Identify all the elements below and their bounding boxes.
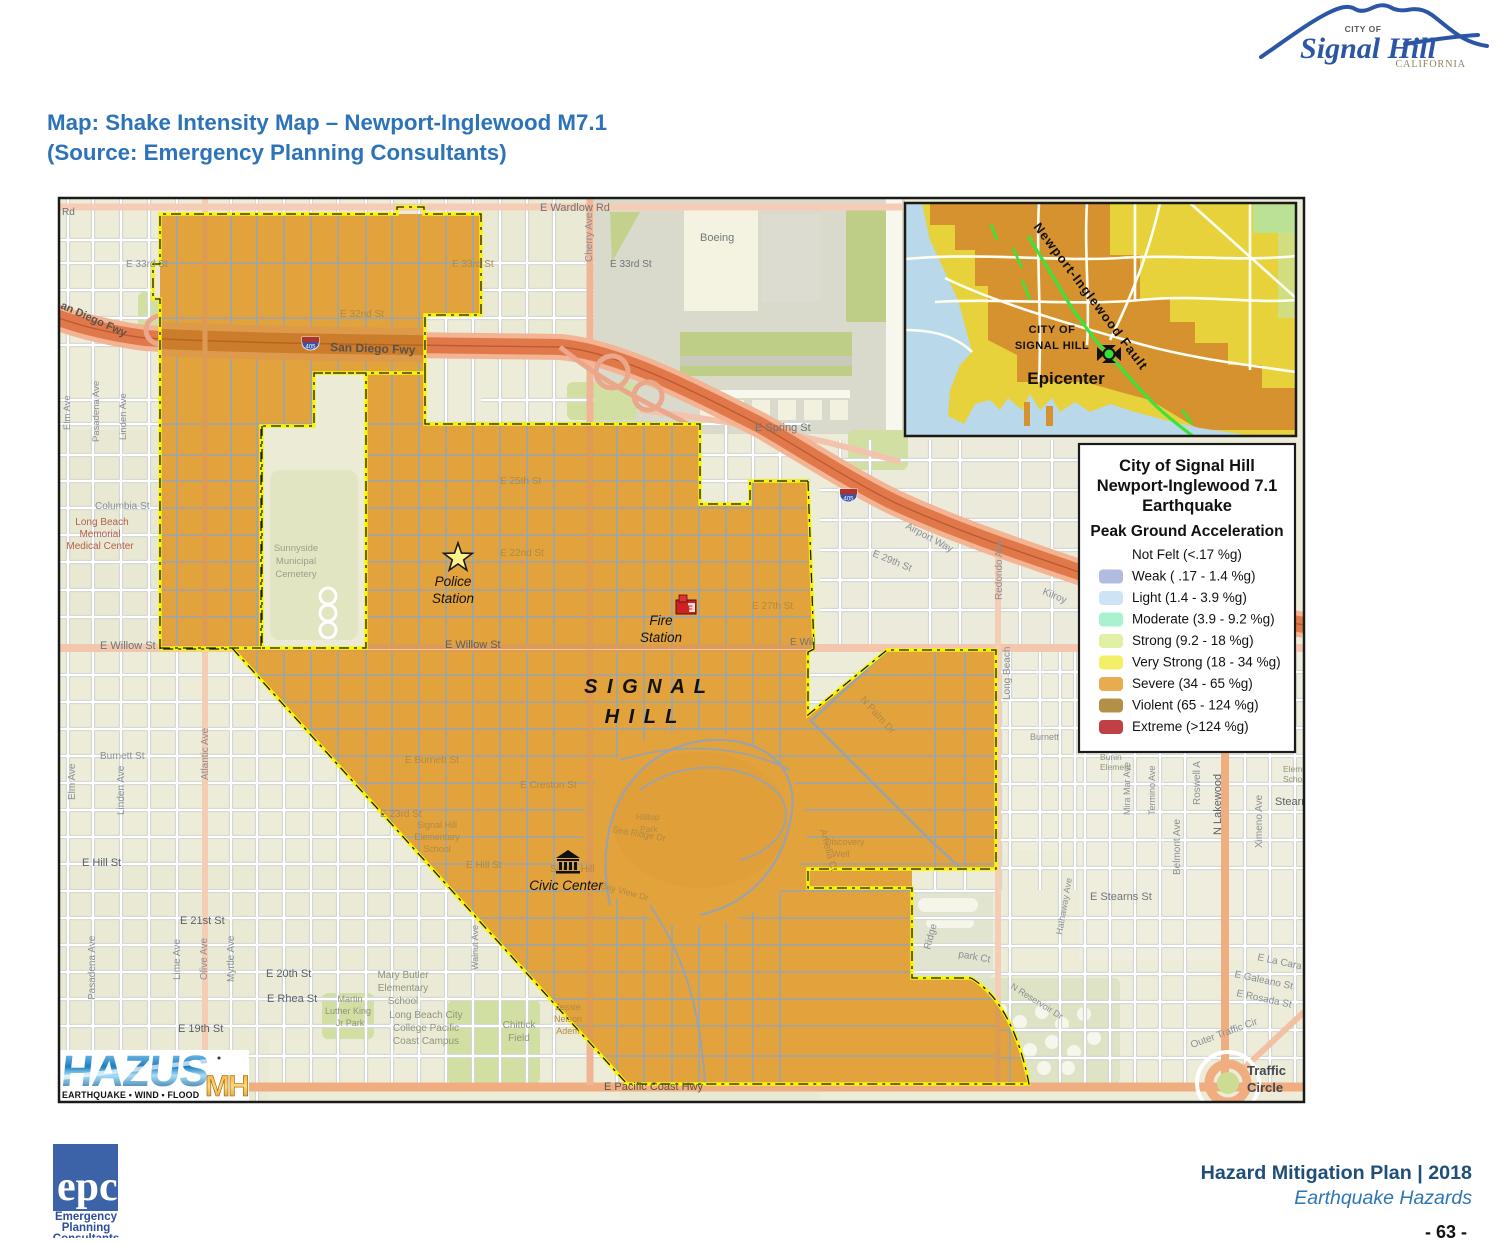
svg-text:S I G N A L: S I G N A L (584, 676, 708, 698)
svg-text:F: F (687, 604, 693, 614)
svg-text:E 33rd St: E 33rd St (126, 259, 168, 270)
svg-text:Belmont Ave: Belmont Ave (1172, 819, 1183, 875)
svg-text:Redondo Ave: Redondo Ave (994, 540, 1005, 600)
svg-text:- 63 -: - 63 - (1425, 1222, 1467, 1238)
svg-text:Mary Butler: Mary Butler (377, 970, 429, 981)
svg-text:E Hill St: E Hill St (82, 857, 121, 869)
svg-text:E 19th St: E 19th St (178, 1023, 223, 1035)
svg-text:Hilltop: Hilltop (636, 812, 660, 822)
svg-text:Well: Well (832, 849, 849, 859)
svg-text:Medical Center: Medical Center (66, 541, 134, 552)
svg-text:E Spring St: E Spring St (755, 422, 811, 434)
svg-text:Sunnyside: Sunnyside (274, 543, 318, 554)
svg-text:E Creston St: E Creston St (520, 780, 577, 791)
svg-text:Burnett St: Burnett St (100, 751, 145, 762)
svg-text:SIGNAL HILL: SIGNAL HILL (1015, 340, 1089, 352)
svg-text:Lime Ave: Lime Ave (172, 939, 183, 980)
svg-text:Map: Shake Intensity Map – New: Map: Shake Intensity Map – Newport-Ingle… (47, 110, 607, 135)
svg-text:Columbia St: Columbia St (95, 501, 150, 512)
svg-text:E 33rd St: E 33rd St (452, 259, 494, 270)
svg-text:405: 405 (305, 345, 316, 351)
svg-text:Circle: Circle (1247, 1080, 1283, 1095)
svg-text:E Willow St: E Willow St (100, 640, 156, 652)
svg-text:E Will: E Will (790, 637, 816, 648)
svg-text:Long Beach: Long Beach (75, 517, 128, 528)
svg-text:405: 405 (843, 497, 854, 503)
svg-text:Cherry Ave: Cherry Ave (584, 212, 595, 262)
svg-text:San Diego Fwy: San Diego Fwy (330, 340, 416, 357)
svg-text:Station: Station (640, 630, 682, 645)
svg-text:Police: Police (435, 574, 472, 589)
svg-text:Stearn: Stearn (1275, 796, 1307, 808)
svg-text:Extreme (>124 %g): Extreme (>124 %g) (1132, 719, 1249, 734)
svg-text:(Source: Emergency Planning Co: (Source: Emergency Planning Consultants) (47, 140, 507, 165)
svg-text:Jessie: Jessie (555, 1002, 581, 1012)
svg-text:Peak Ground Acceleration: Peak Ground Acceleration (1090, 523, 1283, 540)
svg-text:Atlantic Ave: Atlantic Ave (200, 727, 211, 780)
svg-text:E 21st St: E 21st St (180, 915, 225, 927)
svg-text:N Lakewood: N Lakewood (1212, 774, 1224, 835)
svg-text:Elm Ave: Elm Ave (67, 763, 78, 800)
svg-text:Luther King: Luther King (325, 1006, 371, 1016)
svg-text:E Wardlow Rd: E Wardlow Rd (540, 202, 610, 214)
svg-text:E 23rd St: E 23rd St (380, 809, 422, 820)
svg-text:Strong (9.2 - 18 %g): Strong (9.2 - 18 %g) (1132, 633, 1254, 648)
svg-text:Long Beach City: Long Beach City (389, 1010, 462, 1021)
svg-text:H I L L: H I L L (605, 706, 680, 728)
svg-text:Olive Ave: Olive Ave (199, 938, 210, 980)
svg-text:CALIFORNIA: CALIFORNIA (1395, 59, 1466, 70)
svg-text:E 27th St: E 27th St (752, 601, 793, 612)
svg-text:Elementary: Elementary (378, 983, 429, 994)
svg-text:E Willow St: E Willow St (445, 639, 501, 651)
svg-text:Boeing: Boeing (700, 232, 734, 244)
svg-text:Very Strong (18 - 34 %g): Very Strong (18 - 34 %g) (1132, 655, 1281, 670)
svg-text:Elementary: Elementary (414, 832, 460, 842)
svg-text:MH: MH (205, 1070, 248, 1103)
svg-text:E Pacific Coast Hwy: E Pacific Coast Hwy (604, 1081, 704, 1093)
svg-text:Walnut Ave: Walnut Ave (470, 925, 480, 970)
svg-text:Nelson: Nelson (554, 1014, 582, 1024)
svg-text:Newport-Inglewood 7.1: Newport-Inglewood 7.1 (1097, 477, 1278, 495)
svg-text:City of Signal Hill: City of Signal Hill (1119, 457, 1255, 475)
svg-text:Termino Ave: Termino Ave (1147, 766, 1157, 815)
svg-text:School: School (423, 844, 451, 854)
svg-text:E 20th St: E 20th St (266, 968, 311, 980)
svg-text:Field: Field (508, 1033, 530, 1044)
svg-text:EARTHQUAKE • WIND • FLOOD: EARTHQUAKE • WIND • FLOOD (62, 1090, 199, 1100)
svg-text:epc: epc (57, 1164, 118, 1210)
svg-text:Burnett: Burnett (1030, 732, 1060, 742)
svg-text:Elm Ave: Elm Ave (62, 395, 73, 430)
svg-text:Traffic: Traffic (1247, 1063, 1286, 1078)
svg-text:E Stearns St: E Stearns St (1090, 891, 1152, 903)
svg-text:Coast Campus: Coast Campus (393, 1036, 459, 1047)
svg-text:E Burnett St: E Burnett St (405, 755, 459, 766)
svg-text:Signal Hill: Signal Hill (417, 820, 457, 830)
svg-text:Chittick: Chittick (503, 1020, 537, 1031)
svg-text:Fire: Fire (649, 613, 672, 628)
svg-text:Pasadena Ave: Pasadena Ave (87, 935, 98, 1000)
svg-text:Earthquake Hazards: Earthquake Hazards (1294, 1187, 1472, 1209)
svg-text:Station: Station (432, 591, 474, 606)
svg-text:E 32nd St: E 32nd St (340, 309, 384, 320)
svg-text:Roswell A: Roswell A (1192, 761, 1203, 805)
svg-text:Long Beach: Long Beach (1002, 647, 1013, 700)
svg-text:Discovery: Discovery (825, 837, 865, 847)
svg-text:Earthquake: Earthquake (1142, 497, 1232, 515)
svg-text:E 33rd St: E 33rd St (610, 259, 652, 270)
svg-text:Weak ( .17 - 1.4 %g): Weak ( .17 - 1.4 %g) (1132, 569, 1256, 584)
svg-text:Ximeno Ave: Ximeno Ave (1254, 794, 1265, 848)
svg-text:Linden Ave: Linden Ave (118, 393, 129, 440)
svg-text:Element: Element (1100, 762, 1132, 772)
svg-text:Civic Center: Civic Center (529, 878, 603, 893)
svg-text:Hazard Mitigation Plan | 2018: Hazard Mitigation Plan | 2018 (1201, 1162, 1472, 1184)
svg-text:Light (1.4 - 3.9 %g): Light (1.4 - 3.9 %g) (1132, 590, 1247, 605)
svg-text:School: School (388, 996, 419, 1007)
svg-text:Linden Ave: Linden Ave (116, 765, 127, 815)
svg-text:E 22nd St: E 22nd St (500, 548, 544, 559)
svg-text:Consultants: Consultants (53, 1233, 119, 1238)
svg-text:Severe (34 - 65 %g): Severe (34 - 65 %g) (1132, 676, 1253, 691)
svg-text:E Rhea St: E Rhea St (267, 993, 317, 1005)
svg-text:E 25th St: E 25th St (500, 476, 541, 487)
svg-text:Moderate (3.9 - 9.2 %g): Moderate (3.9 - 9.2 %g) (1132, 612, 1275, 627)
svg-text:Jr Park: Jr Park (336, 1018, 365, 1028)
svg-text:Not Felt (<.17 %g): Not Felt (<.17 %g) (1132, 547, 1242, 562)
svg-text:E Hill St: E Hill St (466, 860, 502, 871)
svg-text:Park: Park (640, 824, 658, 834)
svg-text:Memorial: Memorial (79, 529, 120, 540)
svg-text:Cemetery: Cemetery (275, 569, 316, 580)
svg-text:Municipal: Municipal (276, 556, 316, 567)
svg-text:Martin: Martin (337, 994, 362, 1004)
svg-text:Pasadena Ave: Pasadena Ave (91, 381, 102, 442)
svg-text:Adem: Adem (556, 1026, 580, 1036)
svg-text:Bunin: Bunin (1100, 752, 1122, 762)
svg-text:Myrtle Ave: Myrtle Ave (226, 935, 237, 982)
svg-text:CITY OF: CITY OF (1029, 324, 1076, 336)
svg-text:Epicenter: Epicenter (1027, 369, 1105, 388)
svg-text:Violent (65 - 124 %g): Violent (65 - 124 %g) (1132, 698, 1259, 713)
svg-text:Rd: Rd (62, 207, 75, 218)
svg-text:College Pacific: College Pacific (393, 1023, 459, 1034)
